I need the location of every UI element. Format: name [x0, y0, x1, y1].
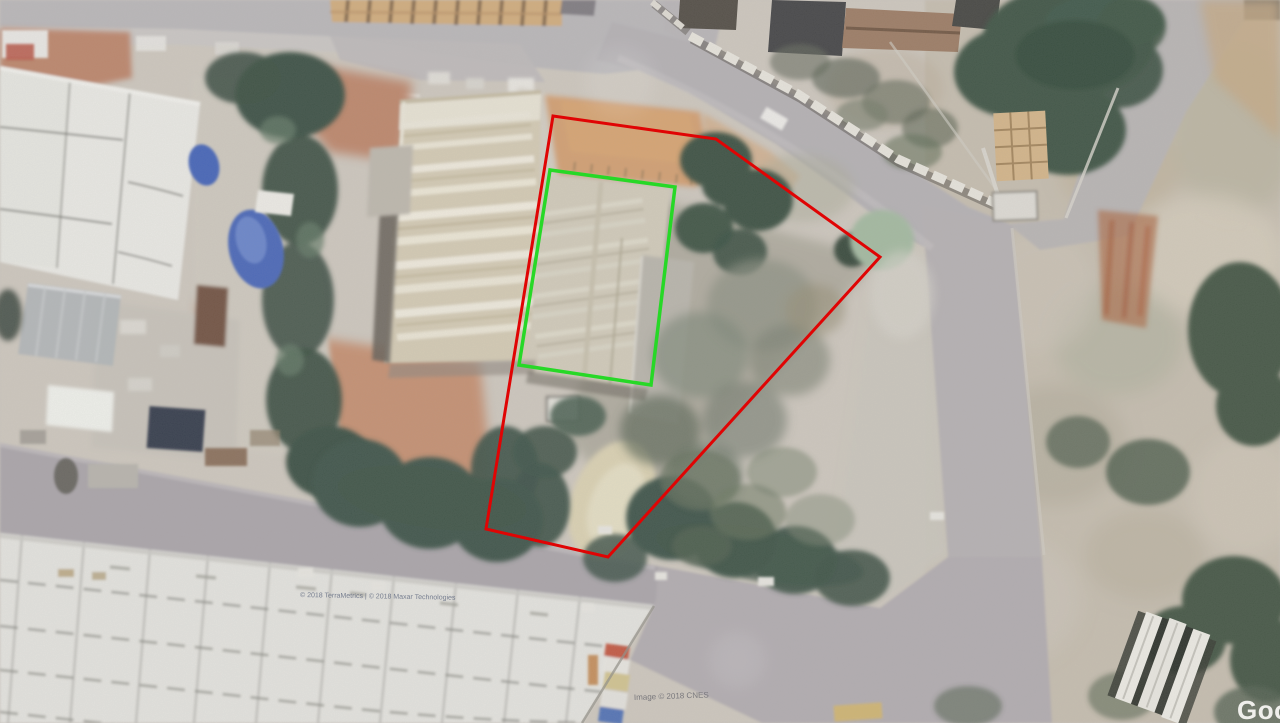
svg-text:Goog: Goog [1237, 695, 1280, 723]
